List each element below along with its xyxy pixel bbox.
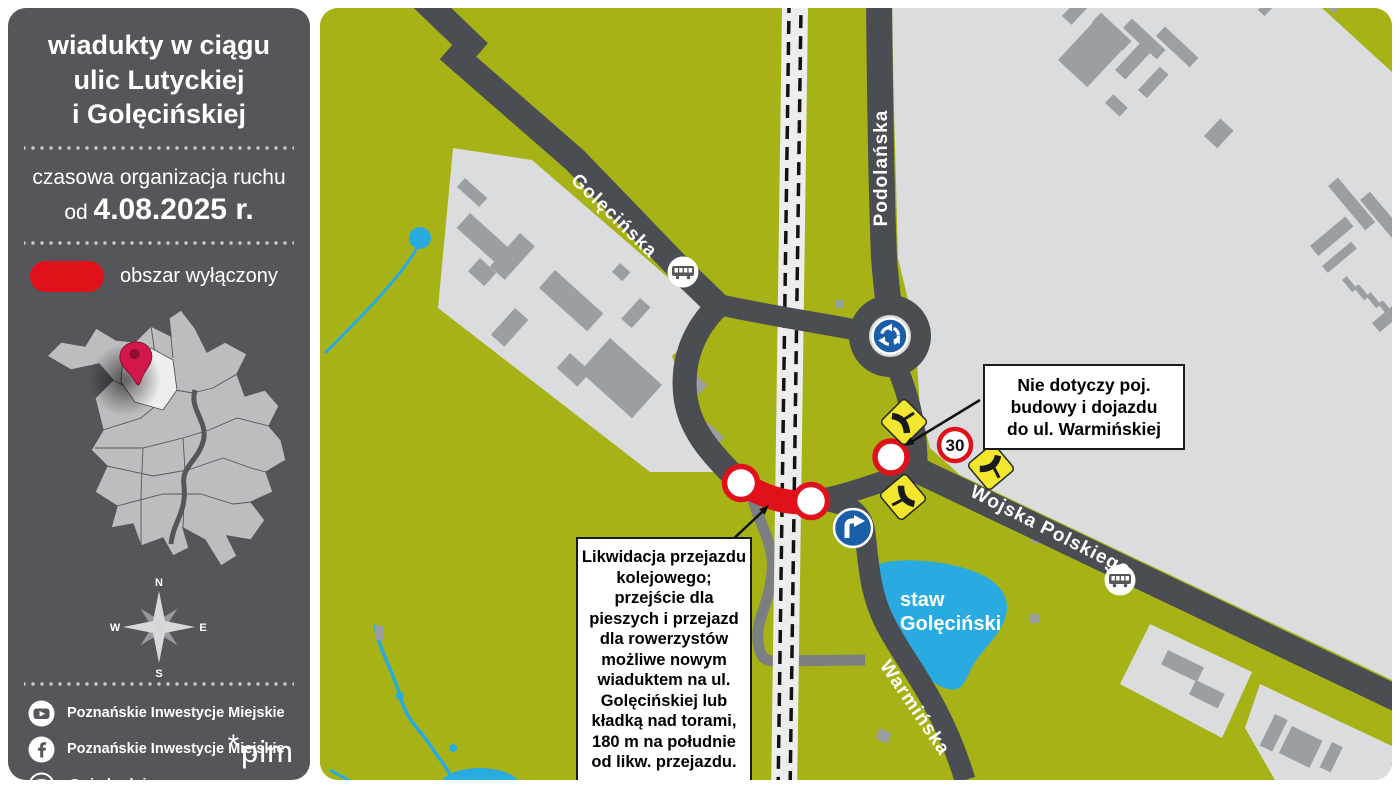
subtitle: czasowa organizacja ruchu (8, 164, 310, 191)
turn-right-sign-icon (834, 509, 872, 547)
no-entry-sign-icon (725, 467, 758, 500)
traffic-map: 30 (320, 8, 1392, 780)
callout-no-entry-note: Nie dotyczy poj. budowy i dojazdu do ul.… (983, 364, 1185, 450)
page-title: wiadukty w ciągu ulic Lutyckiej i Golęci… (8, 28, 310, 132)
instagram-label: @pimbuduje (67, 777, 154, 780)
dotted-divider (24, 241, 294, 245)
city-locator-map (23, 298, 295, 578)
youtube-label: Poznańskie Inwestycje Miejskie (67, 705, 285, 721)
no-entry-sign-icon (795, 485, 828, 518)
compass-s: S (155, 668, 162, 680)
start-date: od 4.08.2025 r. (8, 193, 310, 227)
pim-logo: *pim (228, 734, 294, 770)
facebook-icon (28, 736, 55, 763)
info-sidebar: wiadukty w ciągu ulic Lutyckiej i Golęci… (8, 8, 310, 780)
youtube-link[interactable]: Poznańskie Inwestycje Miejskie (28, 700, 310, 727)
compass-w: W (110, 622, 121, 634)
closed-area-pill-icon (30, 261, 104, 292)
instagram-link[interactable]: @pimbuduje (28, 772, 310, 780)
roundabout-sign-icon (873, 319, 908, 354)
compass-n: N (155, 577, 163, 589)
stream-node (449, 744, 457, 752)
pond-label-line1: staw (900, 589, 945, 611)
tram-stop-icon (668, 257, 699, 288)
instagram-icon (28, 772, 55, 780)
dotted-divider (24, 682, 294, 686)
legend-label: obszar wyłączony (120, 265, 278, 288)
callout-closure-note: Likwidacja przejazdu kolejowego; przejśc… (576, 537, 752, 780)
pond-label-line2: Golęciński (900, 613, 1001, 635)
speed-limit-30-sign: 30 (939, 429, 971, 461)
compass-rose-icon: N S W E (99, 574, 219, 680)
city-outline (47, 310, 286, 566)
small-pond (409, 227, 431, 249)
legend-closed-area: obszar wyłączony (30, 261, 310, 292)
roundabout (859, 305, 921, 367)
compass-e: E (199, 622, 206, 634)
street-label-podolanska: Podolańska (871, 110, 892, 227)
stream-node (396, 692, 404, 700)
dotted-divider (24, 146, 294, 150)
map-canvas: 30 (320, 8, 1392, 780)
speed-limit-value: 30 (946, 436, 965, 455)
youtube-icon (28, 700, 55, 727)
social-links: Poznańskie Inwestycje Miejskie Poznański… (28, 700, 310, 780)
no-entry-sign-icon (875, 441, 907, 473)
